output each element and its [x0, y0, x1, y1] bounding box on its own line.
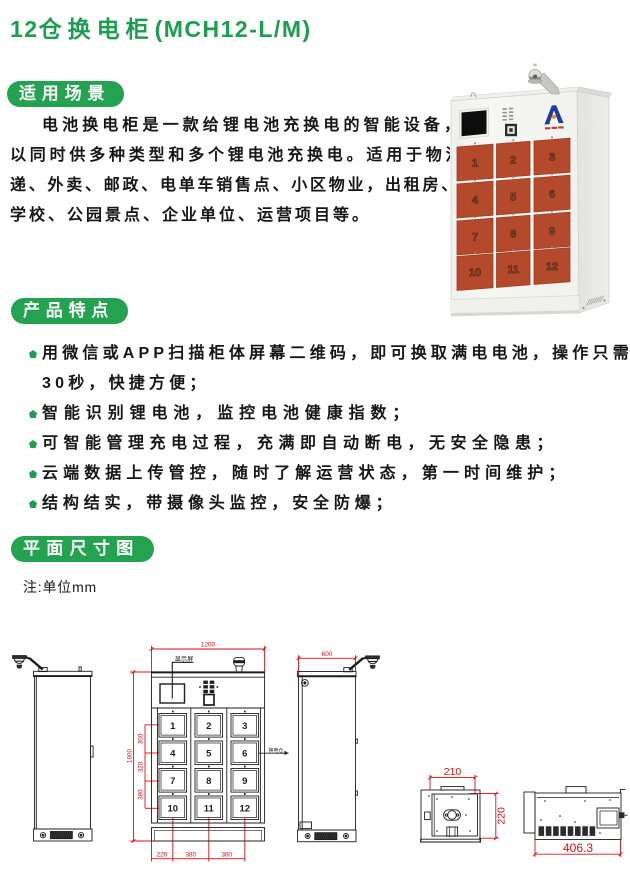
svg-text:7: 7 [472, 232, 478, 244]
svg-text:4: 4 [170, 749, 176, 760]
svg-text:12: 12 [240, 804, 251, 815]
svg-text:1800: 1800 [127, 748, 134, 763]
svg-text:210: 210 [444, 766, 462, 778]
svg-text:380: 380 [185, 852, 196, 859]
svg-text:6: 6 [549, 189, 555, 201]
svg-text:11: 11 [204, 804, 215, 815]
svg-text:12: 12 [546, 261, 558, 273]
svg-text:320: 320 [138, 761, 145, 772]
svg-text:6: 6 [242, 749, 247, 760]
svg-text:5: 5 [206, 749, 212, 760]
svg-text:8: 8 [510, 229, 516, 241]
svg-text:10: 10 [168, 804, 179, 815]
svg-text:9: 9 [549, 226, 555, 238]
svg-text:380: 380 [221, 852, 232, 859]
svg-text:2: 2 [510, 155, 516, 167]
svg-text:3: 3 [549, 152, 555, 164]
svg-text:换电仓: 换电仓 [268, 747, 283, 754]
svg-text:9: 9 [242, 776, 247, 787]
svg-text:2: 2 [206, 721, 211, 732]
svg-text:7: 7 [170, 776, 175, 787]
svg-text:5: 5 [510, 192, 516, 204]
svg-text:300: 300 [138, 733, 145, 744]
svg-text:406.3: 406.3 [563, 841, 593, 855]
svg-text:4: 4 [472, 195, 479, 207]
svg-text:8: 8 [206, 776, 211, 787]
svg-text:1: 1 [170, 721, 176, 732]
svg-text:3: 3 [242, 721, 247, 732]
svg-text:11: 11 [507, 264, 519, 276]
svg-text:10: 10 [469, 267, 481, 279]
svg-text:600: 600 [322, 651, 333, 658]
svg-text:380: 380 [138, 789, 145, 800]
svg-text:1200: 1200 [201, 642, 216, 649]
svg-text:220: 220 [496, 807, 508, 825]
svg-text:220: 220 [157, 852, 168, 859]
svg-text:1: 1 [472, 158, 478, 170]
